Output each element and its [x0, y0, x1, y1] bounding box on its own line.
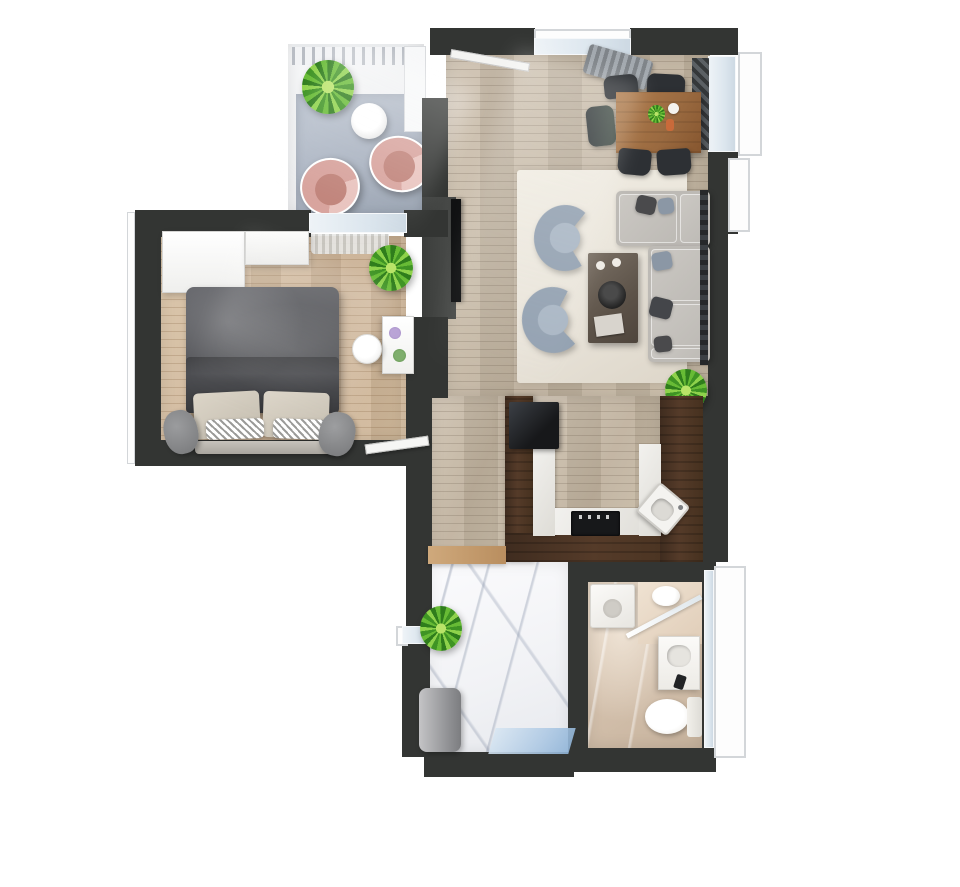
hall-wood-shelf: [428, 546, 506, 564]
window-sill: [127, 212, 135, 464]
dressing-desk: [382, 316, 414, 374]
shower-head: [652, 586, 680, 606]
wall: [404, 210, 448, 237]
throw-pillow: [634, 194, 657, 216]
coffee-table: [588, 253, 638, 343]
wall: [568, 748, 716, 772]
counter-item: [673, 674, 687, 690]
wardrobe: [162, 231, 245, 293]
sofa-wall-radiator: [700, 190, 708, 365]
wall: [568, 560, 716, 582]
book: [594, 313, 625, 337]
wall: [630, 28, 738, 55]
hall-upper-wood-floor: [430, 396, 506, 566]
sink-basin: [648, 495, 678, 524]
wall: [424, 752, 574, 777]
vanity-washbasin: [658, 636, 700, 690]
table-centerpiece-plant: [648, 105, 665, 123]
bed-headboard-bench: [195, 441, 339, 454]
kitchen-counter-right: [660, 396, 703, 562]
dining-chair: [617, 148, 652, 177]
wall-tv: [451, 199, 461, 302]
cooktop-controls: [579, 515, 613, 519]
wardrobe-extension: [245, 231, 309, 265]
throw-pillow: [651, 250, 674, 271]
wall: [430, 28, 535, 55]
desk-flowers: [393, 349, 406, 362]
entry-door-mat: [488, 728, 575, 754]
dining-window: [708, 56, 736, 152]
bathroom-window: [704, 570, 714, 748]
wall: [568, 560, 588, 756]
desk-flowers: [389, 327, 401, 339]
window-sill: [714, 566, 746, 758]
basin: [667, 645, 691, 667]
patterned-pillow: [206, 418, 265, 440]
washer-drum: [603, 599, 622, 618]
throw-pillow: [657, 197, 675, 215]
kitchen-worktop-marble: [533, 444, 555, 536]
balcony-side-table: [351, 103, 387, 139]
wall: [708, 232, 728, 397]
cooktop: [571, 511, 620, 536]
wall: [406, 455, 432, 626]
round-stool: [352, 334, 382, 364]
toilet-tank: [687, 697, 702, 737]
washing-machine: [590, 584, 635, 628]
balcony-plant: [302, 60, 354, 114]
bedroom-balcony-window: [309, 213, 407, 233]
sink-faucet: [677, 504, 684, 511]
laundry-basket: [419, 688, 461, 752]
coffee-cup: [612, 258, 621, 267]
fridge: [509, 402, 559, 449]
double-bed: [186, 287, 339, 455]
wall: [135, 210, 161, 466]
dining-chair: [656, 148, 692, 176]
window-sill: [728, 158, 750, 232]
throw-pillow: [653, 335, 673, 353]
dining-chair: [585, 105, 617, 148]
round-tray: [598, 281, 626, 309]
table-plate: [668, 103, 679, 114]
window-sill: [738, 52, 762, 156]
bedroom-plant: [369, 245, 413, 291]
wall: [422, 98, 448, 200]
floor-plan-render: [0, 0, 960, 887]
wall: [702, 396, 728, 562]
hallway-plant: [420, 606, 462, 651]
coffee-cup: [596, 261, 605, 270]
toilet-bowl: [645, 699, 689, 734]
balcony-railing: [292, 44, 408, 65]
table-decor: [666, 119, 674, 131]
